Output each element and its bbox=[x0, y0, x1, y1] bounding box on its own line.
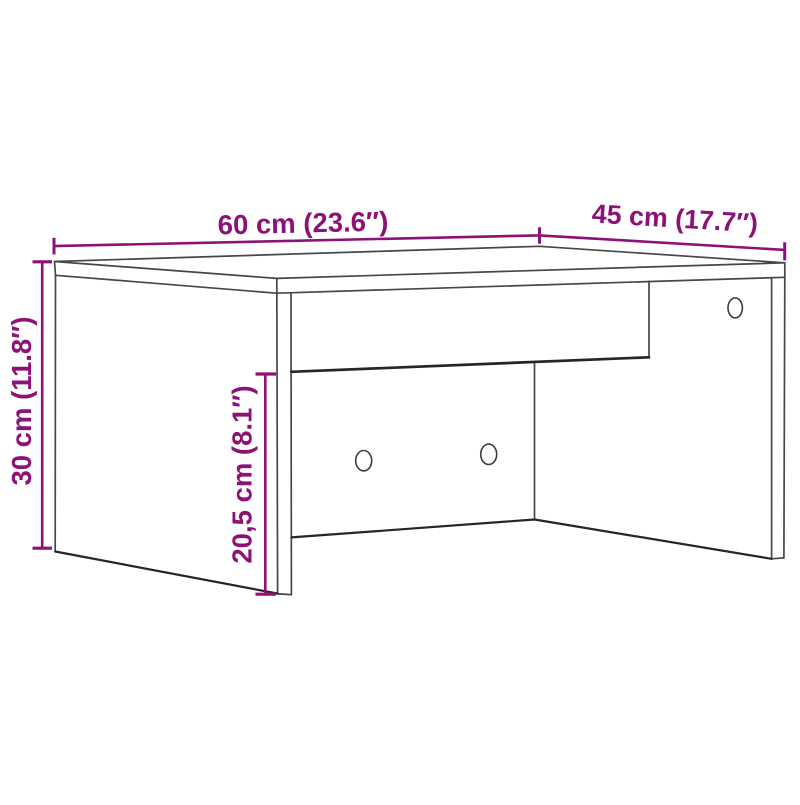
svg-text:30 cm (11.8″): 30 cm (11.8″) bbox=[6, 316, 37, 485]
svg-text:20,5 cm (8.1″): 20,5 cm (8.1″) bbox=[227, 385, 258, 563]
svg-text:60 cm (23.6″): 60 cm (23.6″) bbox=[217, 206, 388, 241]
